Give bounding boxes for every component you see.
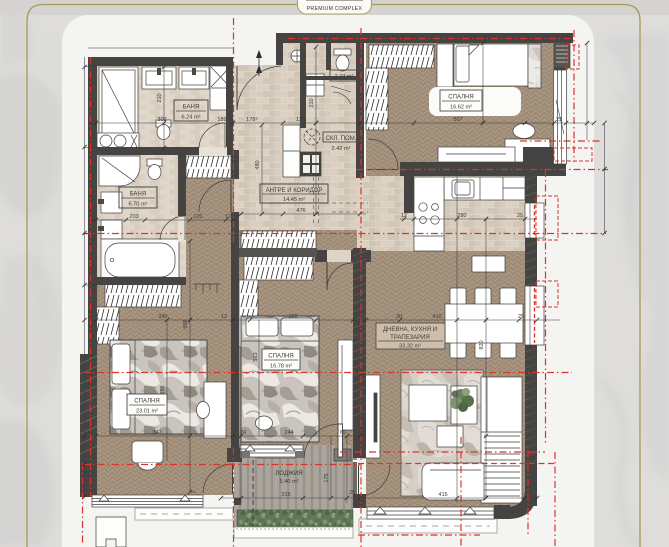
svg-text:189: 189 bbox=[217, 117, 226, 123]
svg-text:25: 25 bbox=[349, 490, 355, 496]
svg-text:178⁵: 178⁵ bbox=[246, 116, 258, 123]
svg-text:203: 203 bbox=[129, 214, 138, 220]
svg-text:12: 12 bbox=[221, 314, 227, 320]
svg-text:210: 210 bbox=[309, 98, 315, 107]
svg-text:16.62 m²: 16.62 m² bbox=[450, 105, 472, 111]
svg-text:556: 556 bbox=[160, 385, 166, 394]
svg-text:315: 315 bbox=[281, 492, 290, 498]
svg-text:303: 303 bbox=[157, 117, 166, 123]
svg-text:СПАЛНЯ: СПАЛНЯ bbox=[134, 399, 159, 405]
svg-text:23.01 m²: 23.01 m² bbox=[136, 409, 158, 415]
svg-text:513: 513 bbox=[253, 352, 259, 361]
svg-text:PREMIUM COMPLEX: PREMIUM COMPLEX bbox=[307, 6, 363, 12]
svg-text:25: 25 bbox=[518, 314, 524, 320]
svg-text:415: 415 bbox=[438, 492, 447, 498]
svg-text:820: 820 bbox=[479, 340, 485, 349]
svg-text:6.24 m²: 6.24 m² bbox=[182, 115, 201, 121]
svg-text:30: 30 bbox=[396, 314, 402, 320]
svg-text:12: 12 bbox=[225, 214, 231, 220]
svg-text:12: 12 bbox=[296, 117, 302, 123]
svg-text:480: 480 bbox=[255, 160, 261, 169]
svg-text:25: 25 bbox=[517, 213, 523, 219]
svg-text:БАНЯ: БАНЯ bbox=[183, 105, 199, 111]
svg-text:АНТРЕ И КОРИДОР: АНТРЕ И КОРИДОР bbox=[266, 188, 323, 194]
svg-text:2.42 m²: 2.42 m² bbox=[332, 146, 351, 152]
svg-text:14.45 m²: 14.45 m² bbox=[283, 197, 305, 203]
svg-text:СКЛ. ПОМ.: СКЛ. ПОМ. bbox=[326, 136, 357, 142]
svg-text:2.23 m²: 2.23 m² bbox=[335, 74, 354, 80]
svg-text:898: 898 bbox=[183, 319, 189, 328]
svg-text:25: 25 bbox=[556, 117, 562, 123]
svg-text:12: 12 bbox=[401, 213, 407, 219]
svg-text:5.40 m²: 5.40 m² bbox=[280, 479, 299, 485]
svg-text:476: 476 bbox=[296, 208, 305, 214]
svg-text:33.32 m²: 33.32 m² bbox=[399, 344, 421, 350]
svg-text:16.78 m²: 16.78 m² bbox=[270, 364, 292, 370]
svg-text:СПАЛНЯ: СПАЛНЯ bbox=[448, 95, 473, 101]
svg-text:340: 340 bbox=[158, 314, 167, 320]
svg-text:СПАЛНЯ: СПАЛНЯ bbox=[268, 354, 293, 360]
svg-text:ЛОДЖИЯ: ЛОДЖИЯ bbox=[275, 470, 303, 477]
svg-text:БАНЯ: БАНЯ bbox=[130, 192, 146, 198]
svg-text:6.70 m²: 6.70 m² bbox=[129, 202, 148, 208]
svg-text:120: 120 bbox=[193, 214, 202, 220]
svg-text:342: 342 bbox=[152, 430, 161, 436]
svg-text:ТРАПЕЗАРИЯ: ТРАПЕЗАРИЯ bbox=[390, 335, 430, 341]
svg-text:60: 60 bbox=[340, 430, 346, 436]
svg-text:244: 244 bbox=[284, 430, 293, 436]
svg-text:210: 210 bbox=[157, 93, 163, 102]
svg-text:410: 410 bbox=[432, 314, 441, 320]
svg-text:175: 175 bbox=[324, 473, 330, 482]
svg-text:ДНЕВНА, КУХНЯ И: ДНЕВНА, КУХНЯ И bbox=[383, 327, 437, 333]
svg-text:328: 328 bbox=[288, 314, 297, 320]
svg-text:507: 507 bbox=[453, 117, 462, 123]
svg-text:24: 24 bbox=[240, 430, 246, 436]
svg-text:280: 280 bbox=[457, 213, 466, 219]
